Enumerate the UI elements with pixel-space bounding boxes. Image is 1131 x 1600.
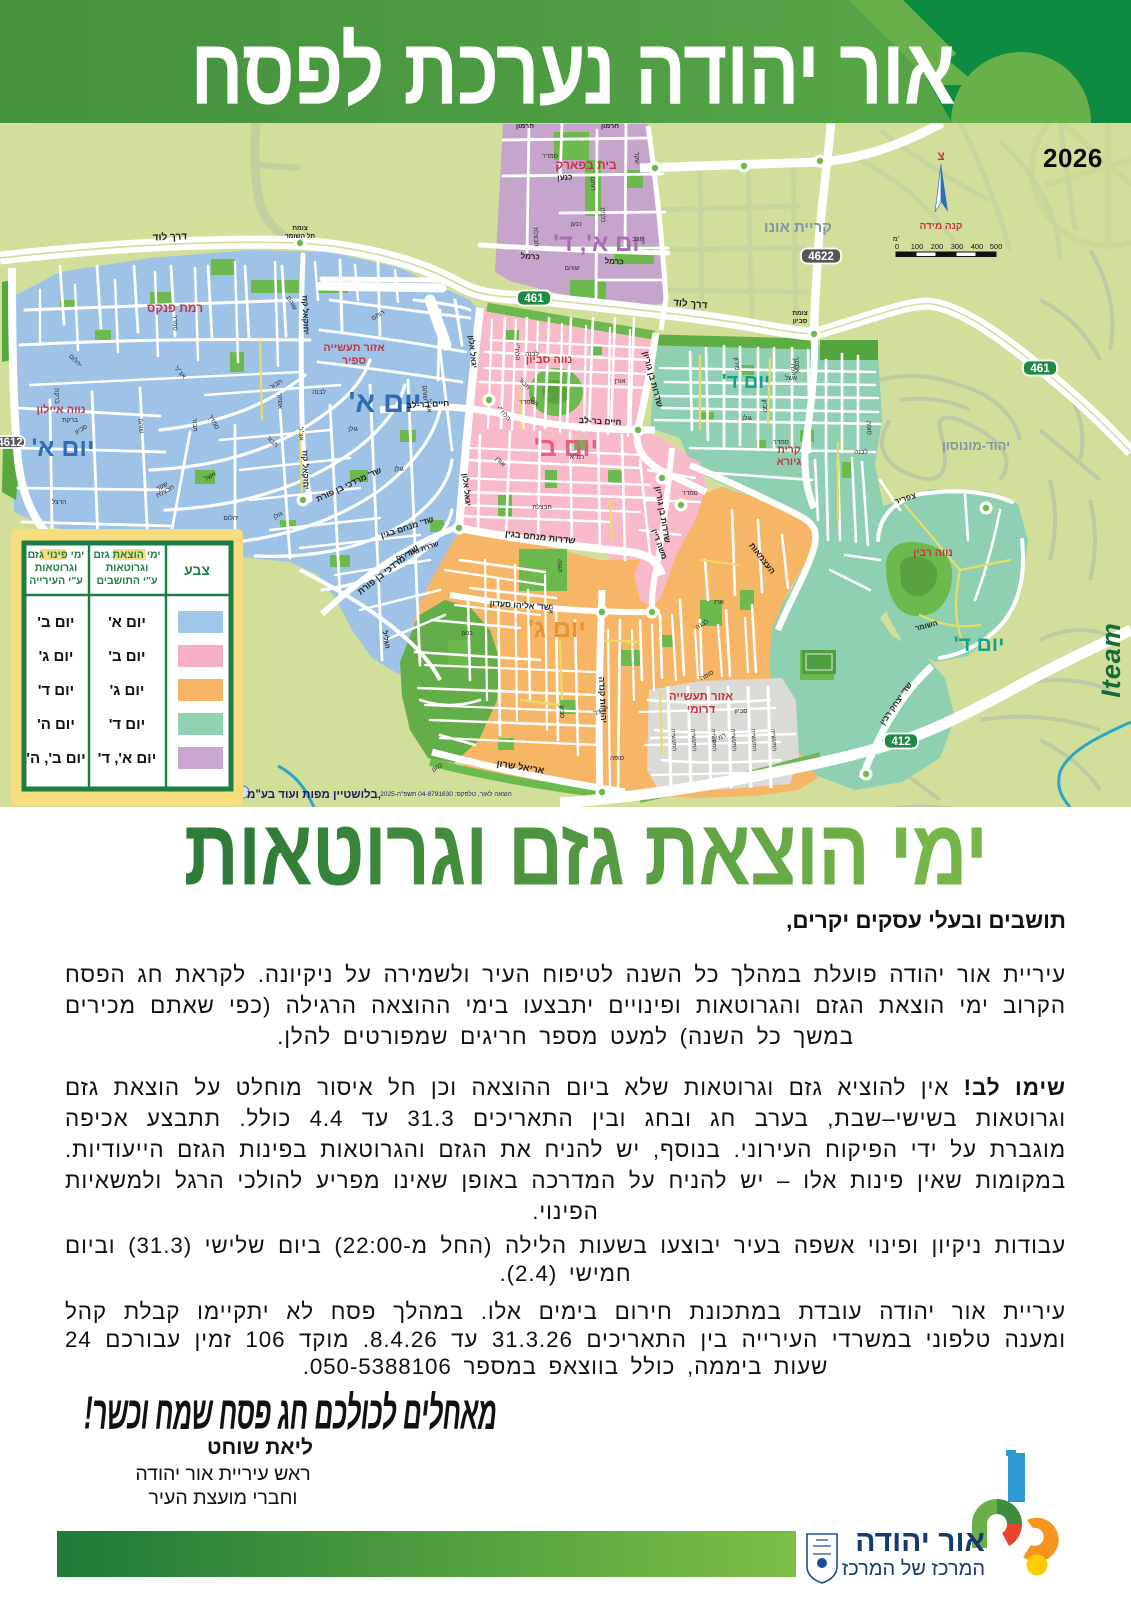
svg-text:200: 200 — [931, 242, 944, 251]
svg-text:סביון: סביון — [793, 318, 808, 325]
svg-text:אצ׳ל: אצ׳ל — [297, 427, 306, 441]
svg-text:סמדר: סמדר — [773, 439, 789, 446]
svg-text:כרמל: כרמל — [604, 257, 624, 267]
svg-text:רמת פנקס: רמת פנקס — [147, 301, 203, 315]
svg-text:סופה: סופה — [610, 755, 624, 762]
svg-text:הלח״י: הלח״י — [788, 358, 797, 376]
svg-text:צבע: צבע — [184, 562, 210, 578]
svg-text:לבנה: לבנה — [854, 448, 868, 456]
svg-text:לבנה: לבנה — [525, 350, 539, 358]
svg-text:יום ב', ה': יום ב', ה' — [26, 750, 85, 767]
svg-text:הלח״י: הלח״י — [512, 343, 521, 361]
svg-text:ברקת: ברקת — [52, 388, 60, 404]
svg-text:הגנה: הגנה — [556, 559, 564, 573]
svg-text:יום ג': יום ג' — [39, 648, 74, 665]
svg-text:רותם: רותם — [589, 177, 597, 192]
svg-text:הוצאה לאור, טלפקס: 04-8791630: הוצאה לאור, טלפקס: 04-8791630 תשפ"ה-2025 — [380, 790, 512, 798]
svg-text:גיורא: גיורא — [777, 456, 802, 468]
svg-text:חבצלת: חבצלת — [532, 503, 552, 511]
svg-text:אסתר: אסתר — [275, 393, 283, 410]
svg-text:יום א', ד': יום א', ד' — [98, 750, 156, 767]
svg-text:המרכז של המרכז: המרכז של המרכז — [842, 1558, 985, 1580]
svg-text:חרמון: חרמון — [601, 123, 619, 130]
svg-text:כנען: כנען — [557, 172, 573, 182]
svg-text:ברקת: ברקת — [62, 417, 78, 424]
svg-text:500: 500 — [990, 242, 1003, 251]
svg-text:יום ב': יום ב' — [108, 648, 145, 665]
svg-text:חצב: חצב — [632, 236, 644, 243]
svg-text:אשל: אשל — [785, 374, 797, 382]
svg-text:יום ד': יום ד' — [38, 682, 74, 699]
svg-text:יום א': יום א' — [108, 614, 146, 631]
svg-text:ארז: ארז — [547, 604, 555, 614]
svg-text:2026: 2026 — [1043, 143, 1103, 173]
svg-text:חרמון: חרמון — [516, 123, 534, 130]
svg-text:300: 300 — [951, 242, 964, 251]
svg-text:יום ה': יום ה' — [37, 716, 75, 733]
svg-text:מירון: מירון — [733, 357, 741, 370]
svg-text:לבנה: לבנה — [312, 388, 326, 396]
svg-text:אזור תעשייה: אזור תעשייה — [669, 691, 733, 703]
svg-text:קנה מידה: קנה מידה — [920, 221, 963, 232]
svg-text:0: 0 — [895, 242, 899, 251]
svg-text:כלנית: כלנית — [598, 207, 607, 223]
svg-text:אור יהודה: אור יהודה — [855, 1525, 985, 1558]
svg-text:וגרוטאות: וגרוטאות — [106, 562, 149, 574]
svg-text:יום א': יום א' — [31, 434, 94, 462]
svg-text:גולן: גולן — [348, 425, 358, 433]
svg-text:וגרוטאות: וגרוטאות — [35, 562, 78, 574]
svg-text:יחזקאל קזז: יחזקאל קזז — [300, 295, 310, 334]
svg-text:אצ׳ל: אצ׳ל — [425, 399, 434, 413]
svg-text:נווה איילון: נווה איילון — [37, 403, 86, 416]
svg-text:יום ב': יום ב' — [534, 432, 598, 462]
svg-text:461: 461 — [524, 293, 544, 305]
svg-text:כרמל: כרמל — [520, 252, 540, 262]
svg-text:רמ׳א: רמ׳א — [570, 454, 584, 461]
svg-text:כנען: כנען — [461, 630, 473, 637]
svg-text:יום ג': יום ג' — [528, 615, 586, 643]
svg-text:כנען: כנען — [570, 221, 582, 228]
svg-text:ספיר: ספיר — [342, 355, 367, 367]
svg-text:חבצלת: חבצלת — [531, 227, 540, 247]
svg-text:גולן: גולן — [742, 414, 752, 422]
svg-text:בית בפארק: בית בפארק — [555, 158, 617, 172]
svg-text:4622: 4622 — [808, 251, 834, 263]
svg-text:ארז: ארז — [714, 599, 724, 606]
svg-text:100: 100 — [911, 242, 924, 251]
svg-text:יחזקאל קזז: יחזקאל קזז — [300, 450, 310, 489]
svg-text:שקד: שקד — [633, 152, 641, 165]
svg-text:צומת: צומת — [292, 225, 307, 232]
svg-text:ימי פינוי גזם: ימי פינוי גזם — [28, 549, 85, 561]
svg-text:קריית אונו: קריית אונו — [764, 219, 832, 236]
svg-text:יום ד': יום ד' — [109, 716, 145, 733]
svg-text:גולן: גולן — [394, 465, 404, 473]
svg-text:יום ד': יום ד' — [722, 371, 770, 393]
svg-text:תל השומר: תל השומר — [285, 232, 315, 240]
svg-text:461: 461 — [1030, 363, 1050, 375]
svg-text:400: 400 — [971, 242, 984, 251]
svg-text:סביון: סביון — [734, 708, 747, 715]
svg-text:צ: צ — [937, 149, 944, 163]
svg-text:יום ד': יום ד' — [954, 633, 1005, 656]
svg-text:הרצל: הרצל — [52, 498, 67, 506]
svg-text:סמדר: סמדר — [542, 153, 558, 160]
svg-text:ימי הוצאת גזם: ימי הוצאת גזם — [93, 549, 160, 561]
svg-text:אורן: אורן — [615, 378, 626, 385]
svg-text:יום ב': יום ב' — [37, 614, 74, 631]
svg-text:4612: 4612 — [0, 437, 23, 449]
svg-text:יום א', ד': יום א', ד' — [553, 230, 647, 257]
svg-text:נווה רבין: נווה רבין — [913, 547, 953, 559]
svg-text:412: 412 — [891, 736, 910, 748]
svg-text:יום ג': יום ג' — [110, 682, 145, 699]
svg-text:דרך לוד: דרך לוד — [153, 230, 188, 243]
svg-text:יהוד-מונוסון: יהוד-מונוסון — [942, 438, 1010, 453]
svg-text:ע"י העירייה: ע"י העירייה — [29, 575, 83, 587]
svg-text:סמדר: סמדר — [682, 490, 698, 497]
svg-text:אזור תעשייה: אזור תעשייה — [323, 342, 385, 354]
svg-text:שוהם: שוהם — [565, 265, 580, 272]
svg-text:תבור: תבור — [191, 418, 199, 432]
svg-text:סמדר: סמדר — [519, 399, 535, 406]
svg-text:דרומי: דרומי — [687, 704, 716, 716]
svg-text:סופה: סופה — [865, 421, 873, 436]
svg-text:צומת: צומת — [792, 310, 807, 317]
svg-text:שוהם: שוהם — [136, 418, 144, 434]
svg-text:סמדר: סמדר — [170, 315, 178, 331]
svg-text:סביון: סביון — [761, 399, 769, 413]
svg-text:ע"י התושבים: ע"י התושבים — [96, 575, 157, 587]
svg-text:Iteam: Iteam — [1096, 622, 1126, 698]
svg-text:יהלום: יהלום — [223, 514, 239, 522]
svg-text:סביון: סביון — [558, 705, 566, 719]
